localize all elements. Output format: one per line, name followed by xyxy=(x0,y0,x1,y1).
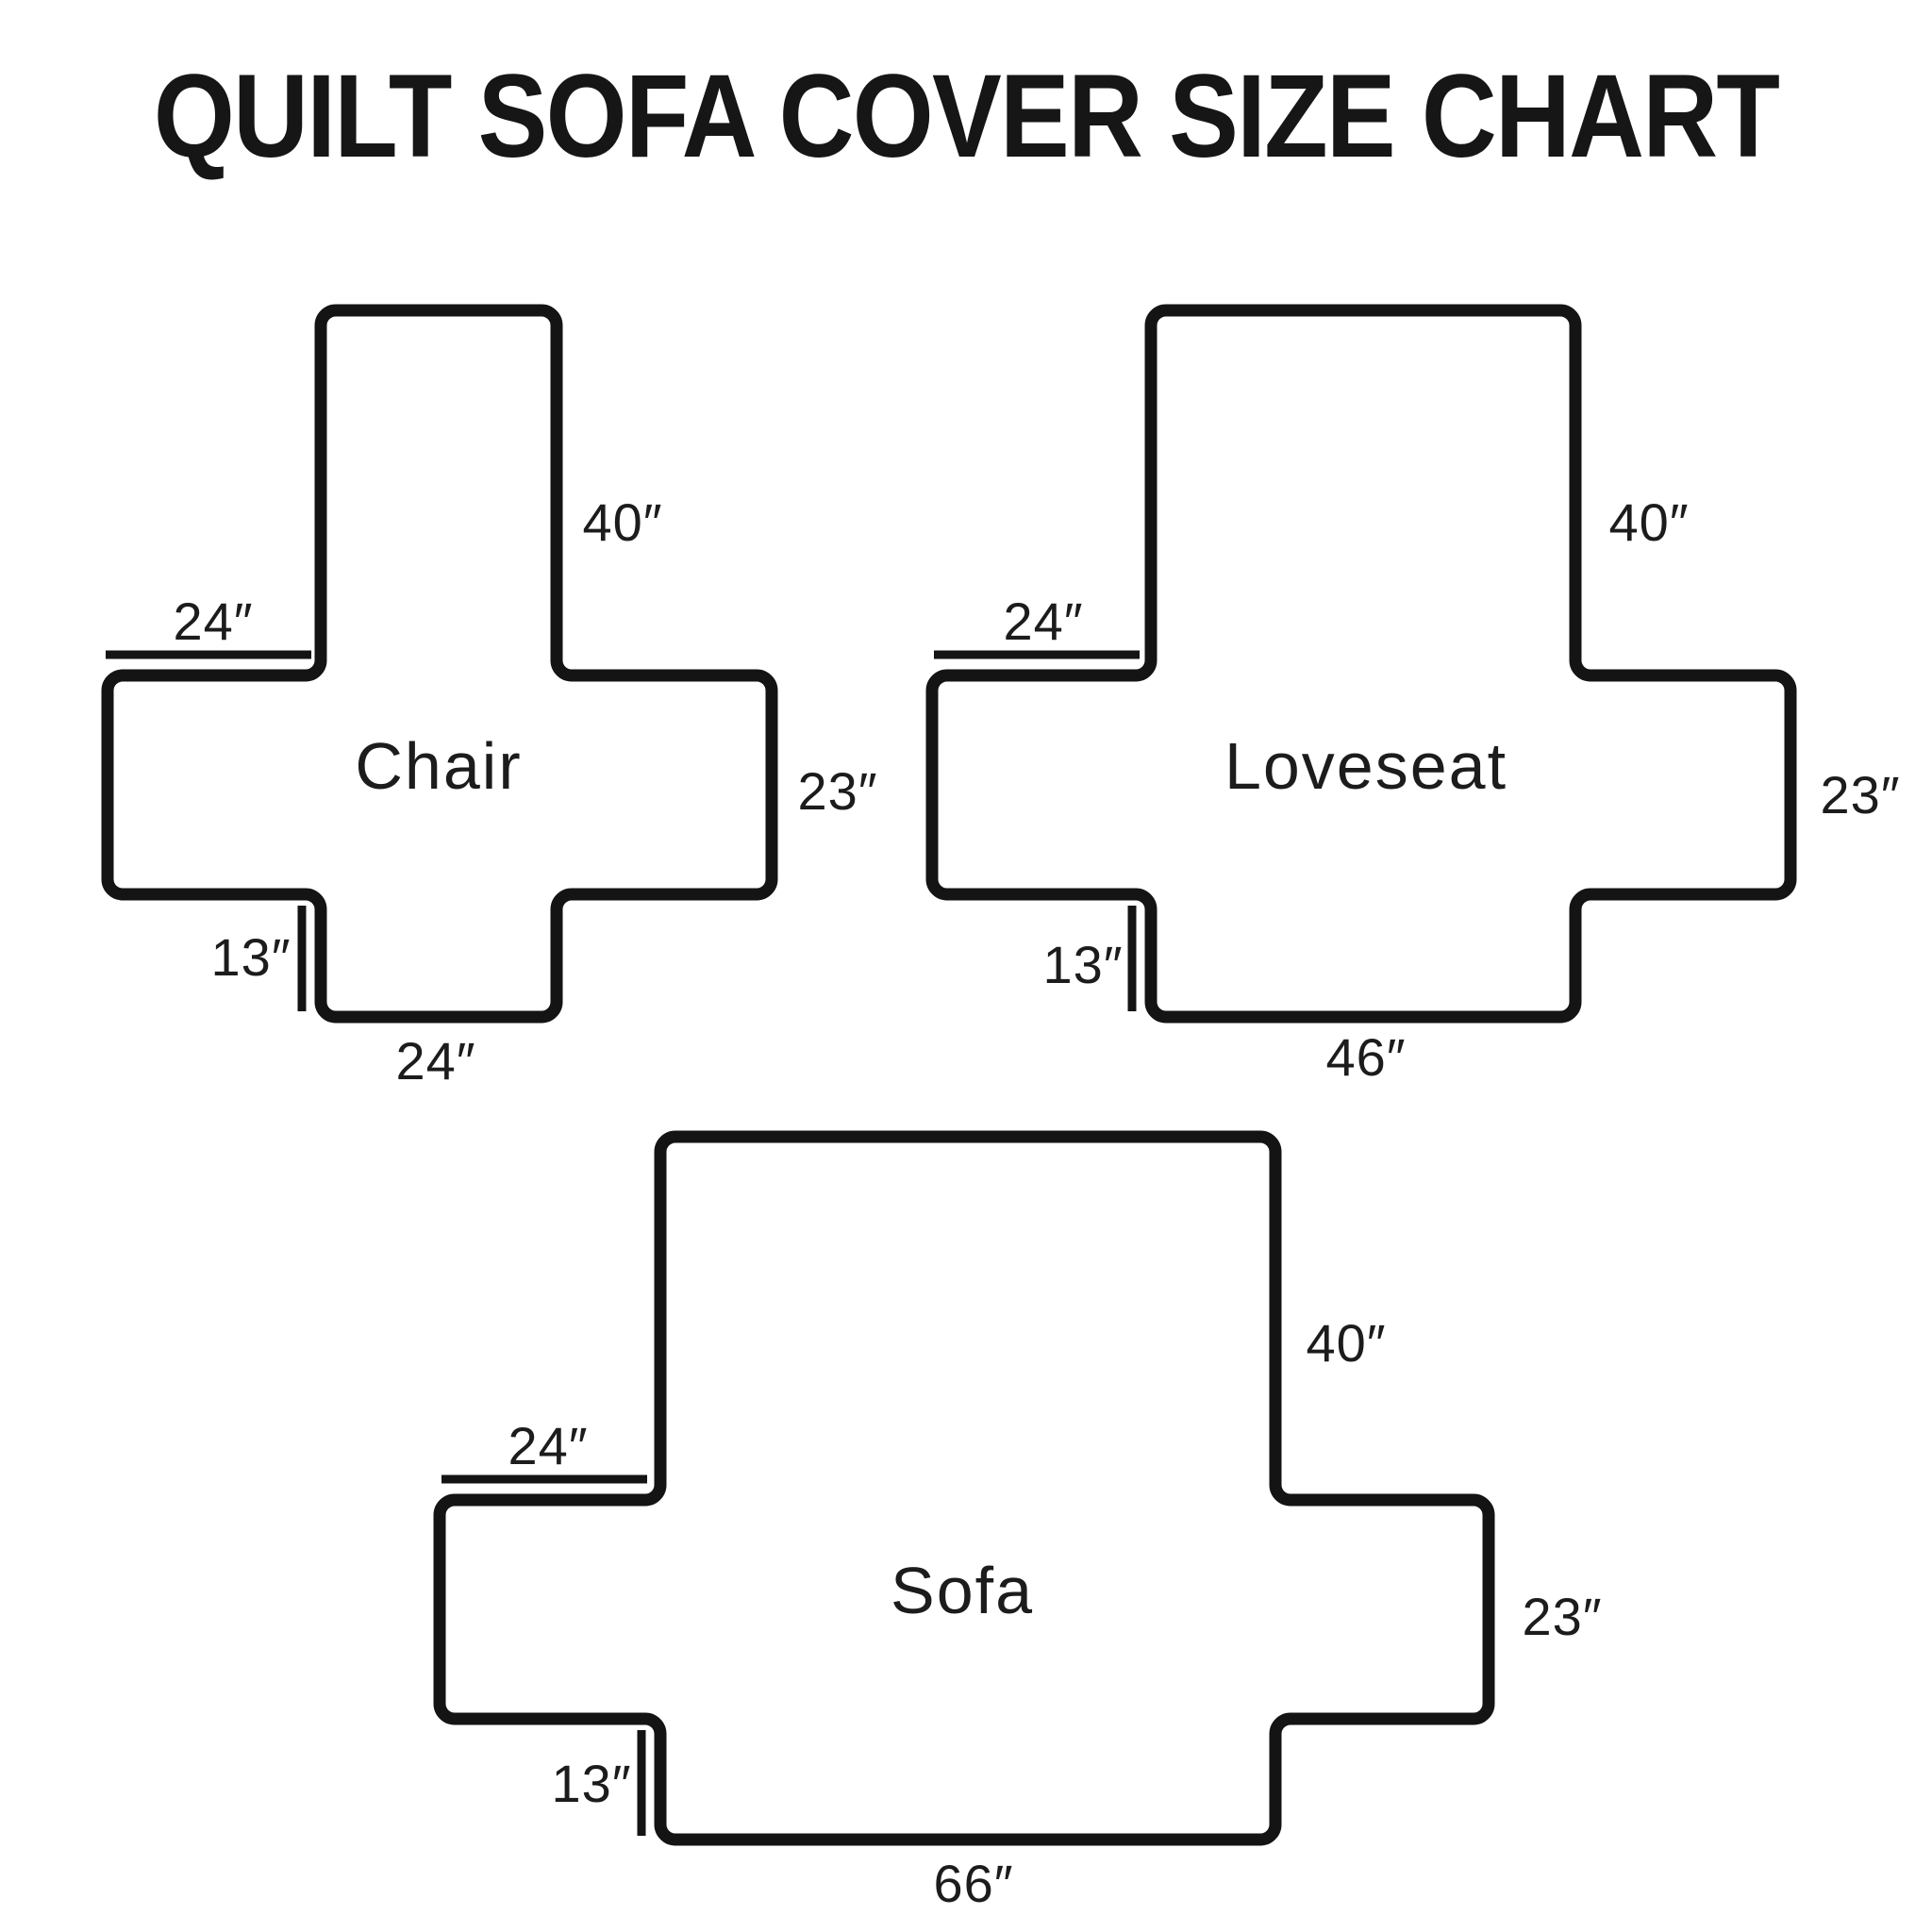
size-diagrams: Chair 40″ 24″ 23″ 13″ 24″ Loveseat 40″ 2… xyxy=(0,0,1932,1932)
loveseat-front-width-label: 46″ xyxy=(1325,1027,1406,1087)
chair-arm-top-width-label: 24″ xyxy=(173,591,253,651)
chair-side-height-label: 23″ xyxy=(797,761,877,821)
chair-back-length-label: 40″ xyxy=(582,492,662,552)
loveseat-cover-outline xyxy=(932,310,1790,1017)
size-chart-page: QUILT SOFA COVER SIZE CHART Chair 40″ 24… xyxy=(0,0,1932,1932)
sofa-name-label: Sofa xyxy=(891,1554,1034,1627)
chair-diagram: Chair 40″ 24″ 23″ 13″ 24″ xyxy=(106,310,878,1091)
sofa-front-flap-label: 13″ xyxy=(551,1754,631,1813)
sofa-front-width-label: 66″ xyxy=(933,1854,1013,1913)
loveseat-back-length-label: 40″ xyxy=(1608,492,1689,552)
chair-name-label: Chair xyxy=(355,729,522,803)
loveseat-front-flap-label: 13″ xyxy=(1042,935,1123,994)
sofa-cover-outline xyxy=(440,1137,1489,1840)
sofa-side-height-label: 23″ xyxy=(1522,1587,1602,1646)
chair-front-width-label: 24″ xyxy=(395,1031,475,1091)
loveseat-diagram: Loveseat 40″ 24″ 23″ 13″ 46″ xyxy=(932,310,1901,1087)
chair-cover-outline xyxy=(108,310,772,1017)
chair-front-flap-label: 13″ xyxy=(210,927,291,987)
sofa-diagram: Sofa 40″ 24″ 23″ 13″ 66″ xyxy=(440,1137,1603,1913)
loveseat-side-height-label: 23″ xyxy=(1820,765,1900,824)
loveseat-name-label: Loveseat xyxy=(1224,729,1507,803)
loveseat-arm-top-width-label: 24″ xyxy=(1003,591,1083,651)
sofa-back-length-label: 40″ xyxy=(1306,1313,1386,1373)
sofa-arm-top-width-label: 24″ xyxy=(508,1416,588,1475)
